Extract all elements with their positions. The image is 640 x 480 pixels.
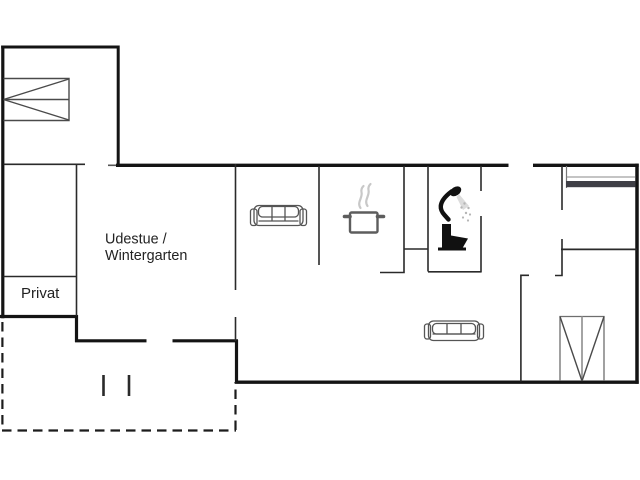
svg-text:Udestue /: Udestue / bbox=[105, 231, 167, 247]
svg-text:Privat: Privat bbox=[21, 285, 60, 302]
svg-text:Wintergarten: Wintergarten bbox=[105, 248, 187, 264]
